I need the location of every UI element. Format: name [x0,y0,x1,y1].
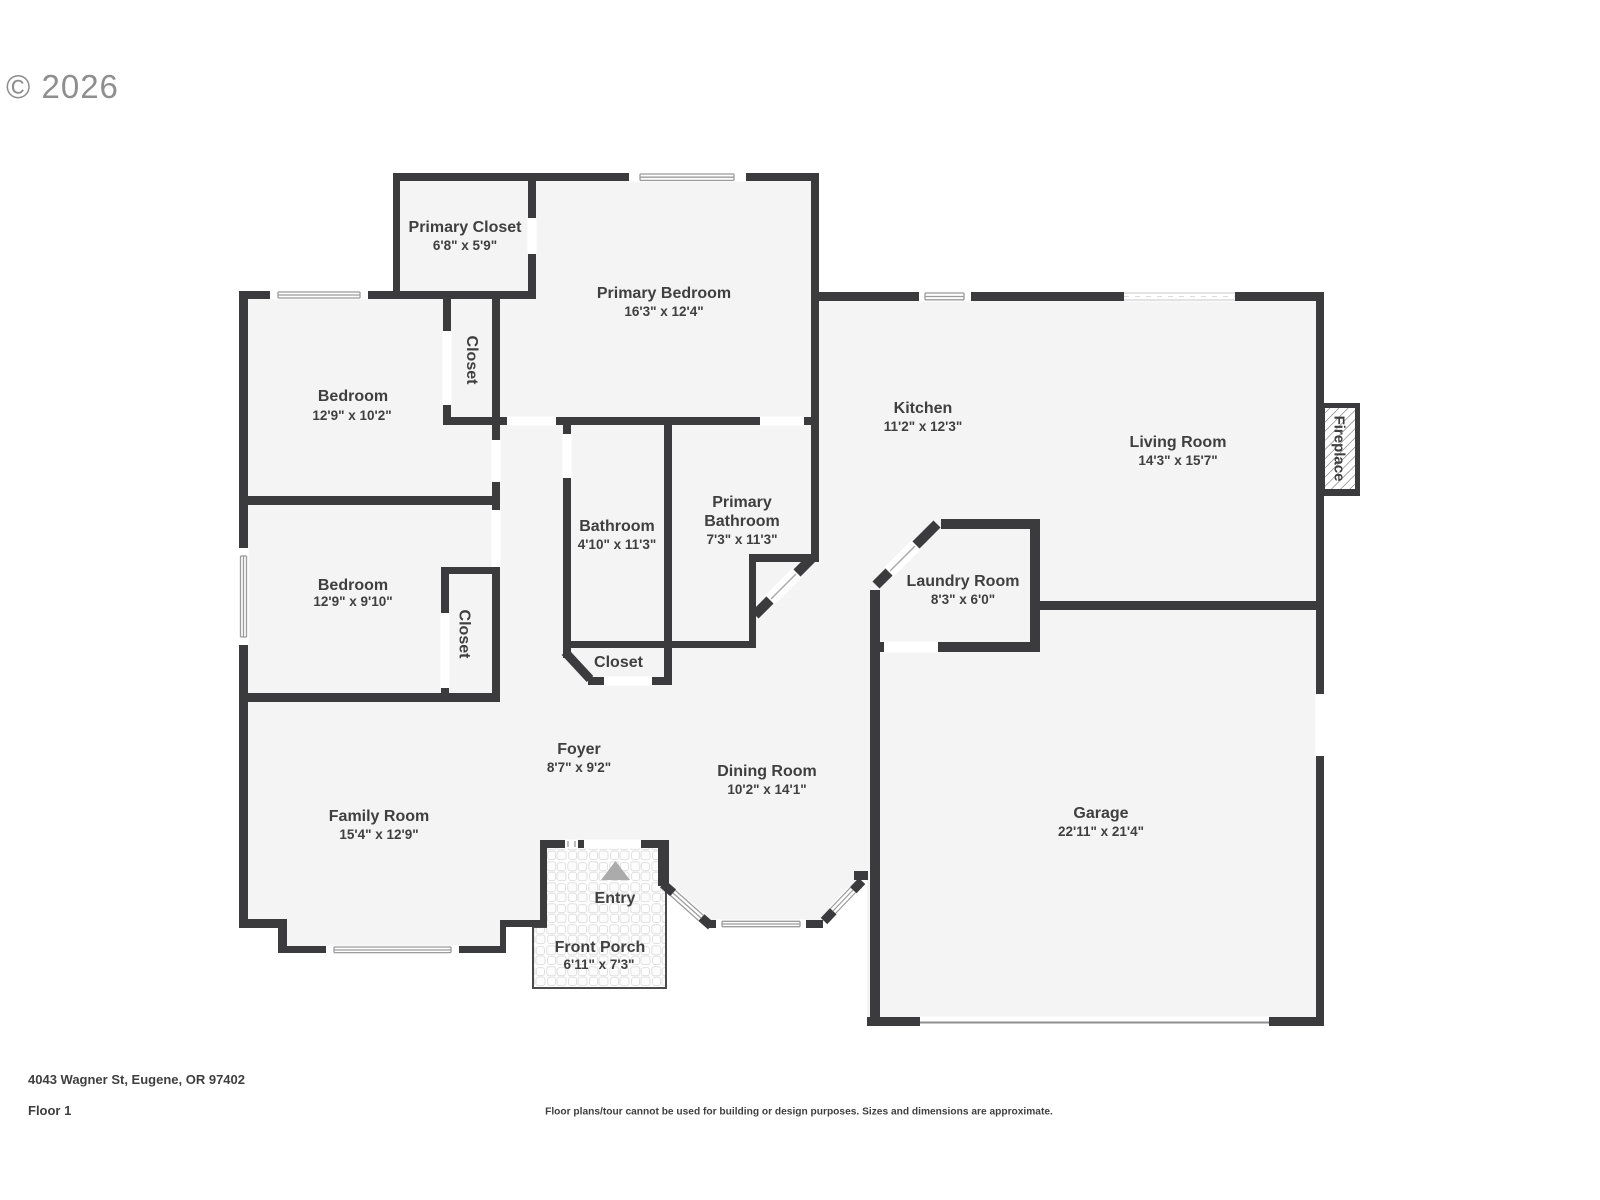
svg-text:Foyer: Foyer [557,741,601,758]
svg-text:16'3" x 12'4": 16'3" x 12'4" [624,304,703,319]
svg-text:Closet: Closet [456,610,473,660]
svg-text:Family Room: Family Room [329,808,429,825]
svg-text:Laundry Room: Laundry Room [907,573,1020,590]
svg-text:11'2" x 12'3": 11'2" x 12'3" [884,419,963,434]
svg-text:Bathroom: Bathroom [704,513,780,530]
svg-text:Bedroom: Bedroom [318,577,388,594]
svg-text:4'10" x 11'3": 4'10" x 11'3" [578,537,657,552]
svg-text:Bedroom: Bedroom [318,388,388,405]
svg-text:15'4" x 12'9": 15'4" x 12'9" [339,827,418,842]
svg-text:12'9" x 10'2": 12'9" x 10'2" [312,408,391,423]
svg-text:Floor 1: Floor 1 [28,1103,71,1118]
svg-text:© 2026: © 2026 [6,68,119,105]
svg-text:6'8" x 5'9": 6'8" x 5'9" [433,238,497,253]
svg-text:Bathroom: Bathroom [579,518,655,535]
svg-text:4043 Wagner St, Eugene, OR 974: 4043 Wagner St, Eugene, OR 97402 [28,1072,245,1087]
svg-text:Living Room: Living Room [1130,434,1227,451]
svg-text:Garage: Garage [1073,805,1128,822]
svg-text:14'3" x 15'7": 14'3" x 15'7" [1138,453,1217,468]
svg-text:Dining Room: Dining Room [717,763,817,780]
svg-text:Primary Closet: Primary Closet [409,219,523,236]
svg-text:Primary Bedroom: Primary Bedroom [597,285,731,302]
svg-text:Closet: Closet [594,654,644,671]
svg-text:Front Porch: Front Porch [555,939,646,956]
svg-text:Entry: Entry [595,890,636,907]
svg-text:10'2" x 14'1": 10'2" x 14'1" [727,782,806,797]
svg-text:Fireplace: Fireplace [1331,416,1348,482]
svg-text:Closet: Closet [463,336,480,386]
svg-text:Floor plans/tour cannot be use: Floor plans/tour cannot be used for buil… [545,1107,1053,1118]
svg-text:Primary: Primary [712,494,772,511]
svg-text:22'11" x 21'4": 22'11" x 21'4" [1058,824,1144,839]
svg-text:6'11" x 7'3": 6'11" x 7'3" [563,957,634,972]
svg-text:8'3" x 6'0": 8'3" x 6'0" [931,592,995,607]
svg-text:7'3" x 11'3": 7'3" x 11'3" [706,532,777,547]
svg-text:12'9" x 9'10": 12'9" x 9'10" [313,594,392,609]
svg-text:8'7" x 9'2": 8'7" x 9'2" [547,760,611,775]
svg-text:Kitchen: Kitchen [894,400,953,417]
